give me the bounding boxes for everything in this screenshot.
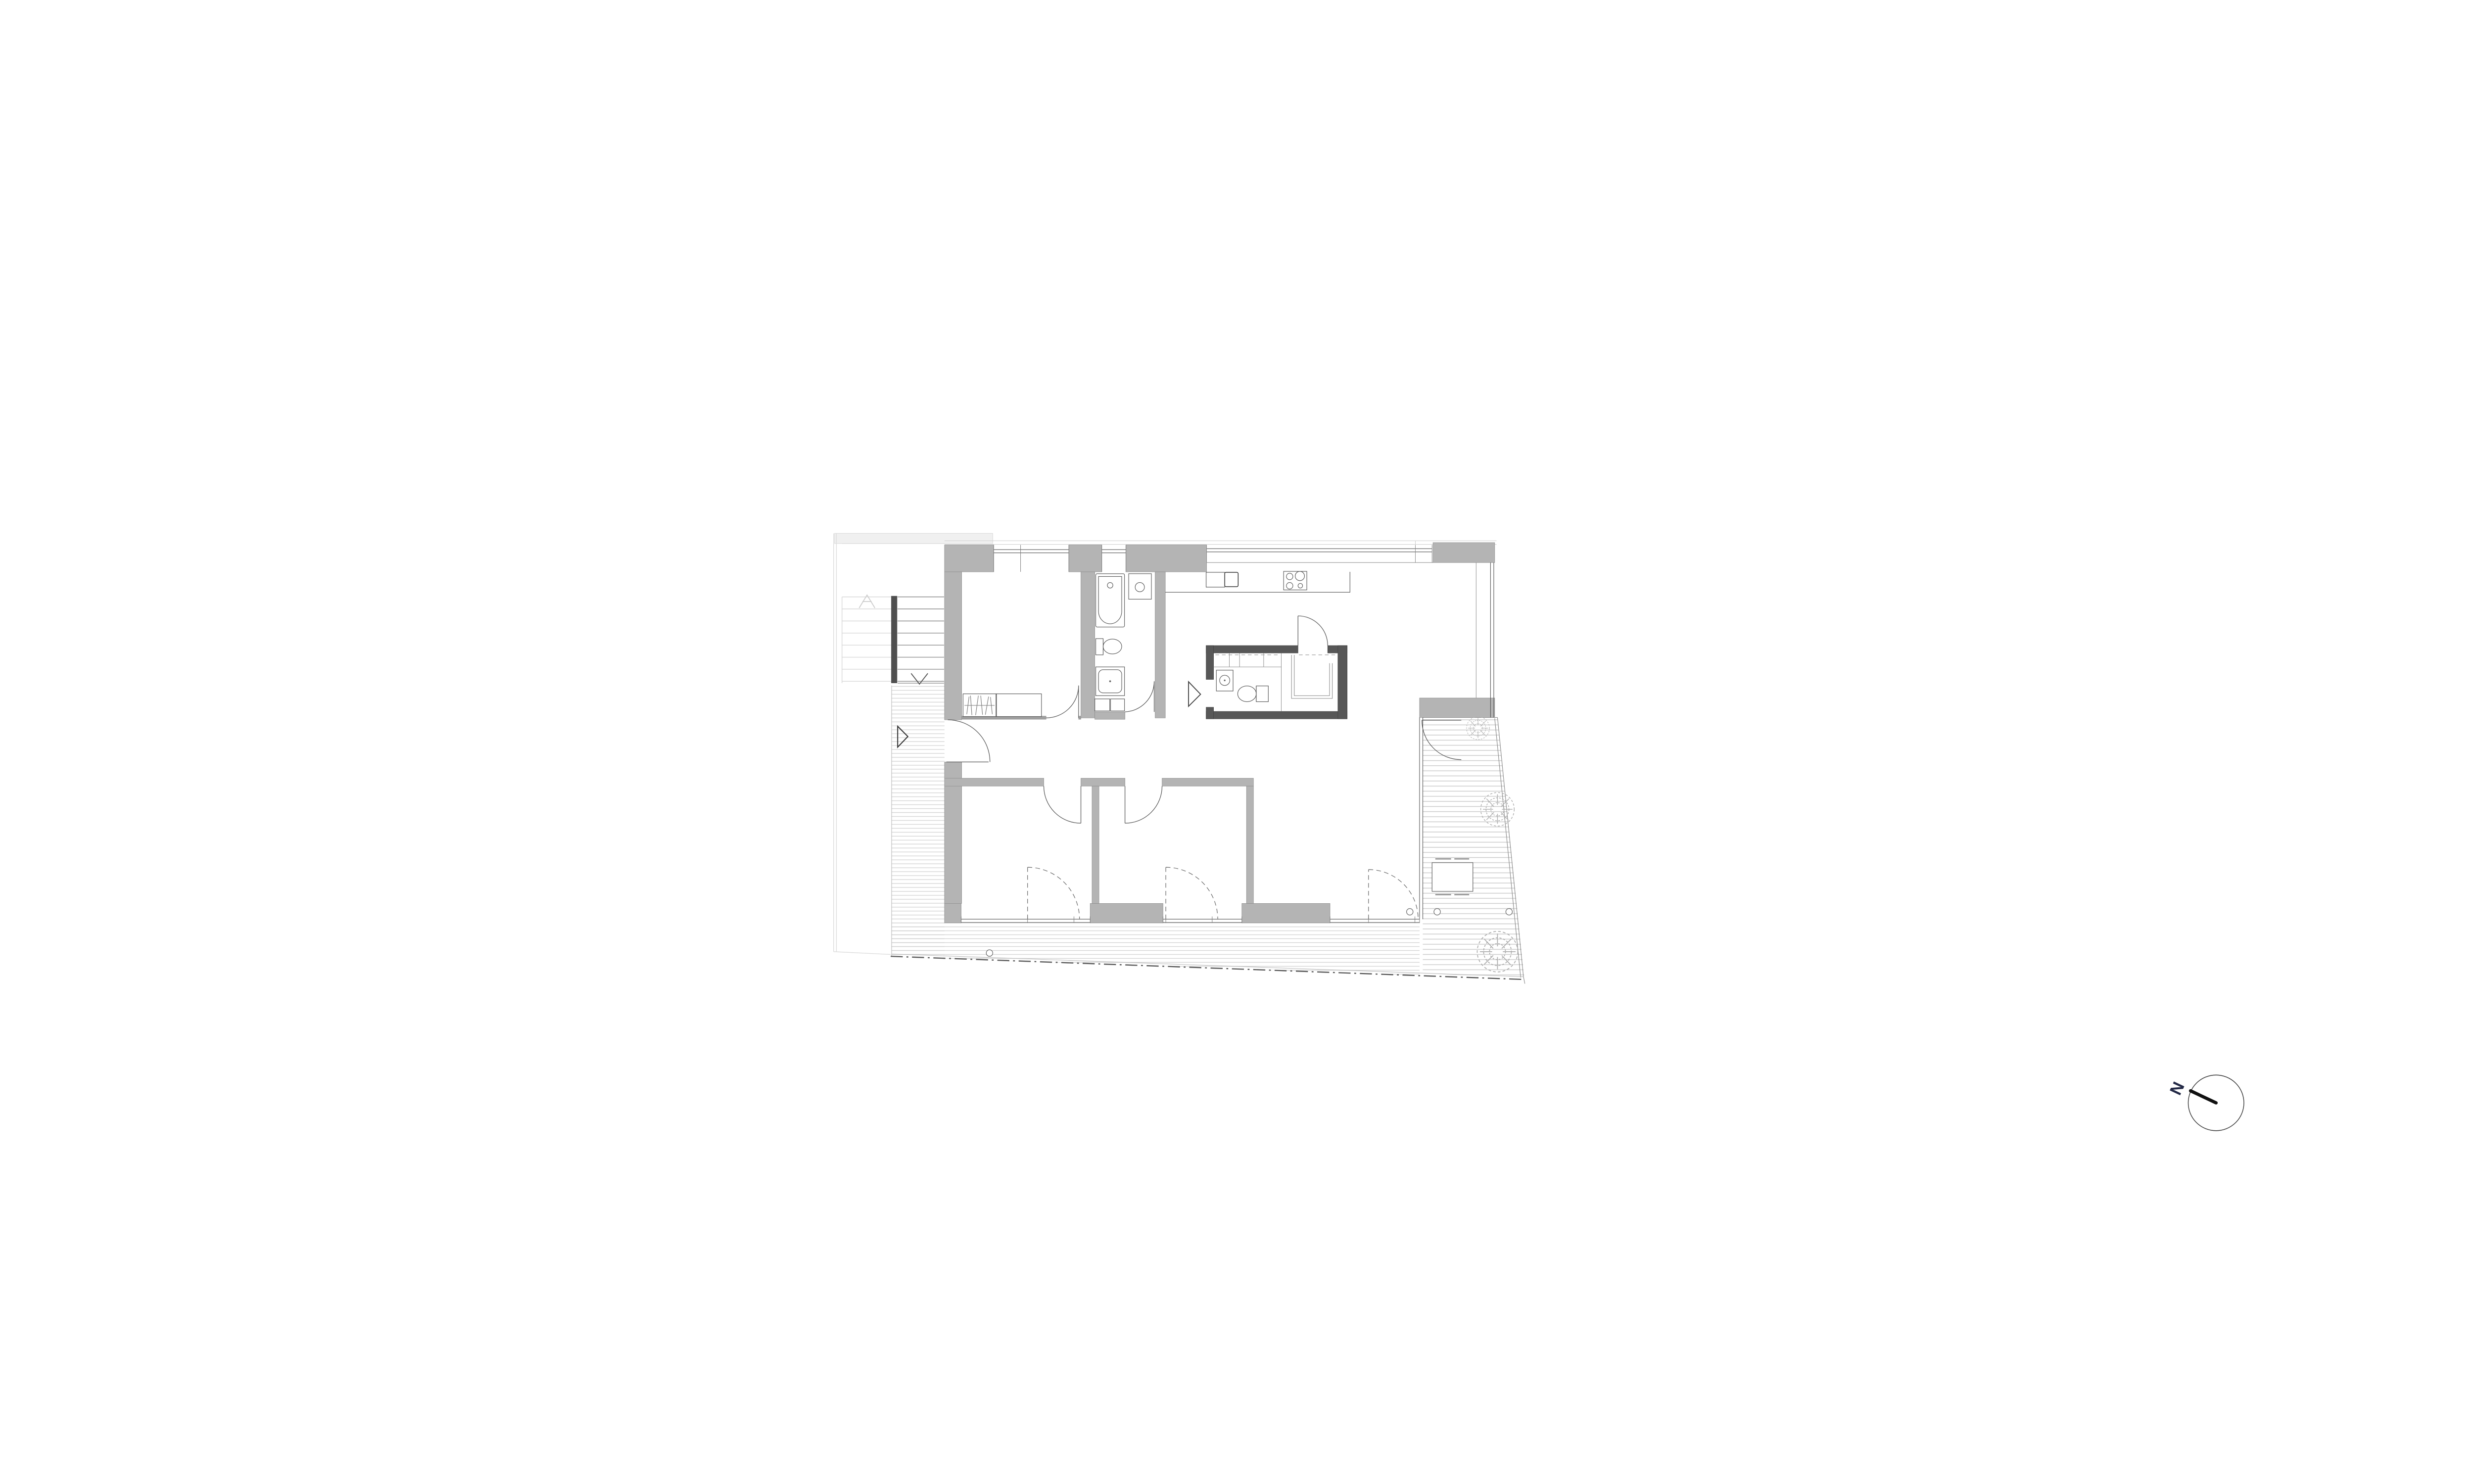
- wet-core-door: [1298, 616, 1328, 646]
- kitchen-sink: [1206, 572, 1238, 587]
- wc-sink: [1216, 670, 1233, 691]
- entry-deck-strip: [892, 686, 945, 958]
- south-glazing: [961, 917, 1420, 923]
- sliding-terrace-doors: [1028, 867, 1418, 919]
- southeast-glazing: [1420, 717, 1423, 919]
- toilet: [1096, 639, 1122, 655]
- floor-plan-drawing: N: [0, 0, 2474, 1391]
- bathroom-door: [1125, 681, 1154, 712]
- cooktop: [1284, 571, 1307, 590]
- entrance-door: [947, 720, 990, 762]
- top-window-kitchen: [1207, 545, 1433, 563]
- stair-handrail: [891, 596, 897, 683]
- wet-core: [1189, 646, 1347, 719]
- washbasin-cabinet: [1129, 574, 1151, 600]
- kitchen-counter: [1165, 572, 1350, 592]
- outdoor-table: [1432, 863, 1473, 891]
- bedroom-nw-furniture: [963, 694, 1041, 717]
- built-in-bench: [1291, 655, 1332, 698]
- roof-edge-lines: [945, 541, 1497, 545]
- bedroom2-door: [1125, 786, 1162, 823]
- kitchen: [1165, 571, 1350, 592]
- walls: [945, 543, 1495, 923]
- wet-core-door-marker: [1189, 682, 1200, 706]
- north-label: N: [2166, 1079, 2189, 1098]
- stair-direction-chevron: [911, 673, 928, 684]
- wc-toilet: [1237, 686, 1268, 702]
- staircase: [842, 595, 944, 684]
- nw-room-door: [1046, 686, 1079, 718]
- doors: [947, 616, 1462, 823]
- south-deck: [892, 923, 1420, 975]
- hall-cabinets: [1095, 699, 1125, 711]
- compass: N: [2166, 1075, 2244, 1131]
- top-window-bathroom: [1102, 545, 1126, 572]
- wardrobe: [963, 694, 996, 717]
- top-window-nw-room: [994, 545, 1069, 572]
- deck: [891, 686, 1525, 984]
- windows: [961, 545, 1494, 923]
- bathtub: [1096, 574, 1125, 627]
- east-terrace: [1423, 717, 1524, 977]
- east-window-band: [1476, 562, 1494, 717]
- floor-plan-sheet: N: [0, 0, 2474, 1391]
- bathroom-fixtures: [1095, 574, 1151, 711]
- bedroom1-door: [1044, 786, 1081, 823]
- cabinet: [997, 694, 1042, 717]
- shower: [1096, 667, 1125, 696]
